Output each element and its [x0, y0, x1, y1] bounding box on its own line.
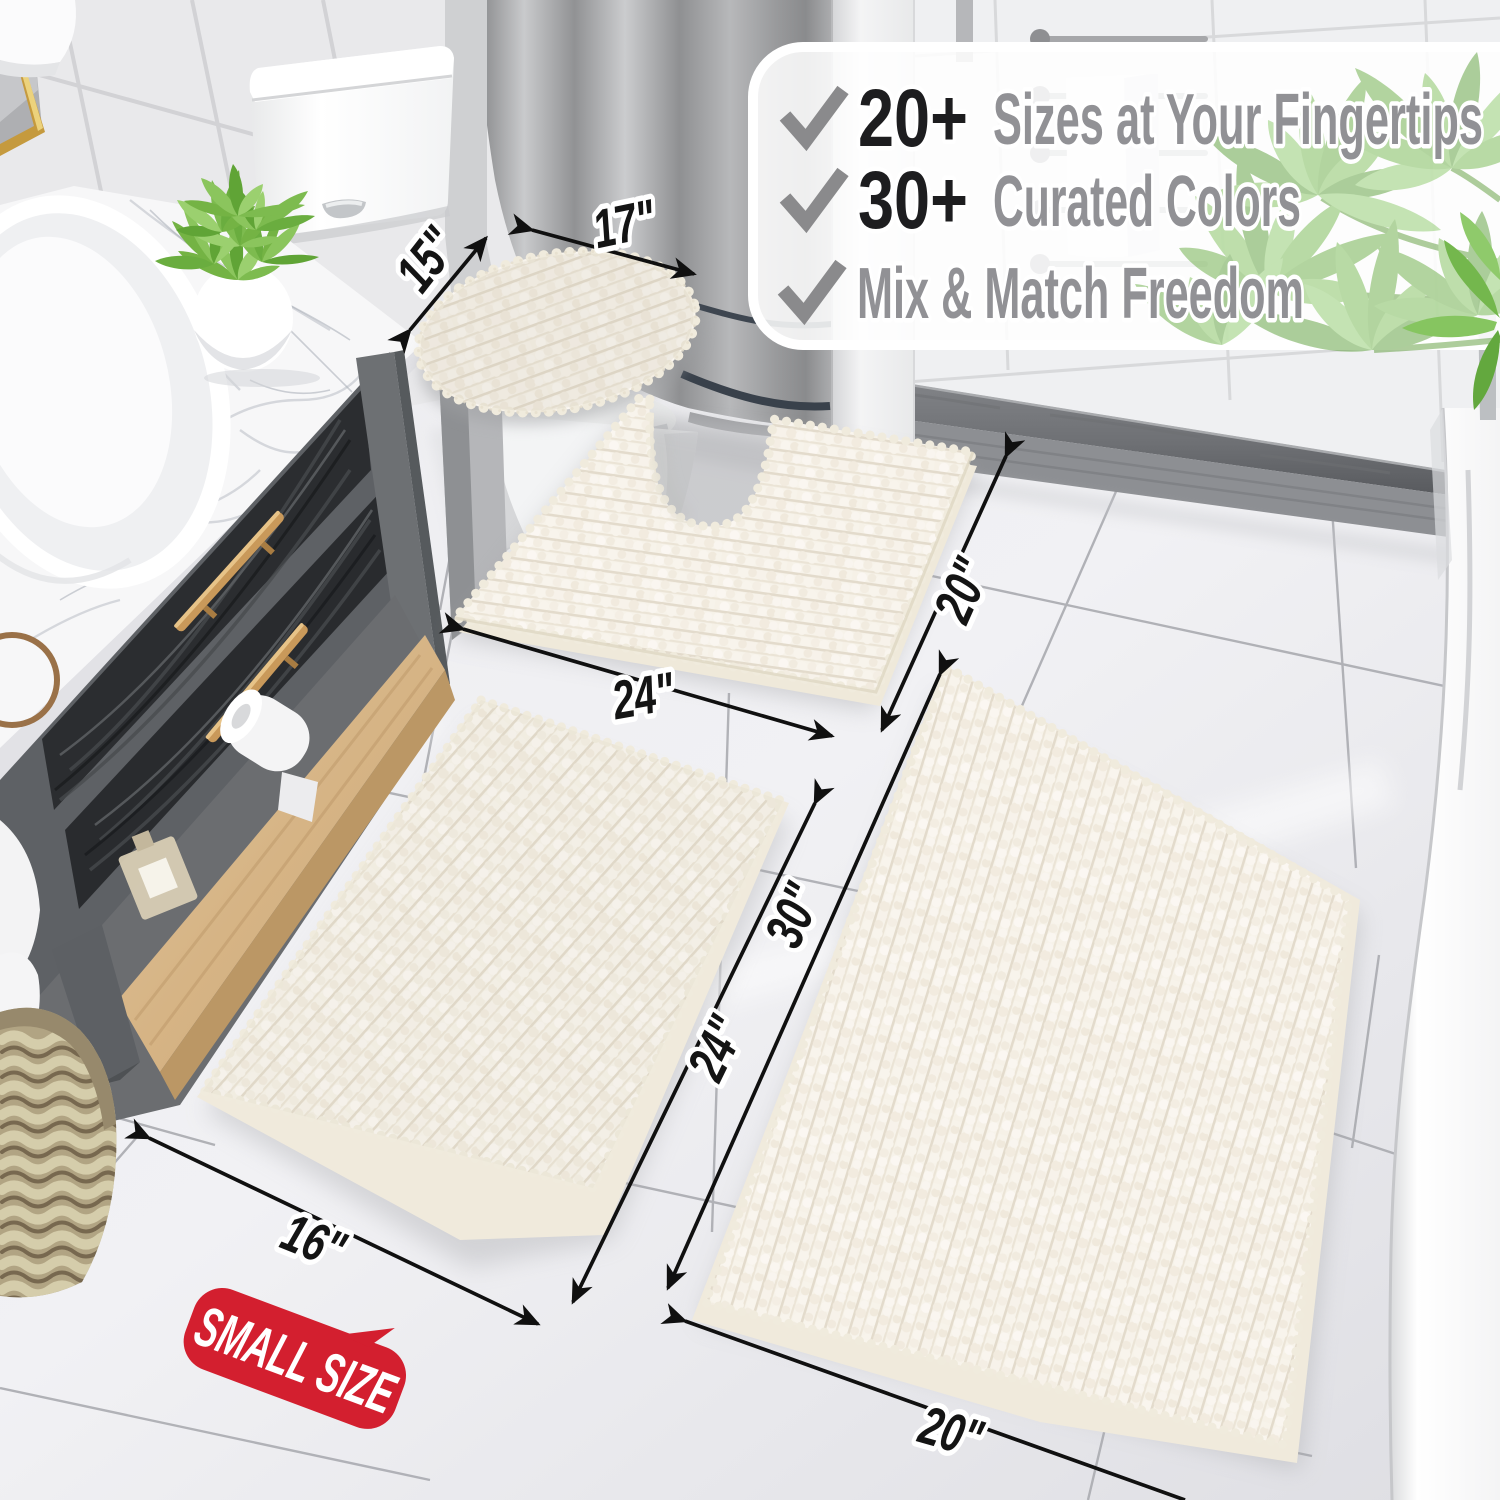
svg-text:Mix & Match Freedom: Mix & Match Freedom	[857, 254, 1304, 334]
svg-text:30+: 30+	[858, 155, 968, 246]
svg-text:Curated Colors: Curated Colors	[993, 162, 1301, 242]
svg-text:20+: 20+	[858, 73, 968, 164]
svg-text:24": 24"	[607, 661, 680, 731]
svg-text:Sizes at Your Fingertips: Sizes at Your Fingertips	[993, 80, 1483, 160]
